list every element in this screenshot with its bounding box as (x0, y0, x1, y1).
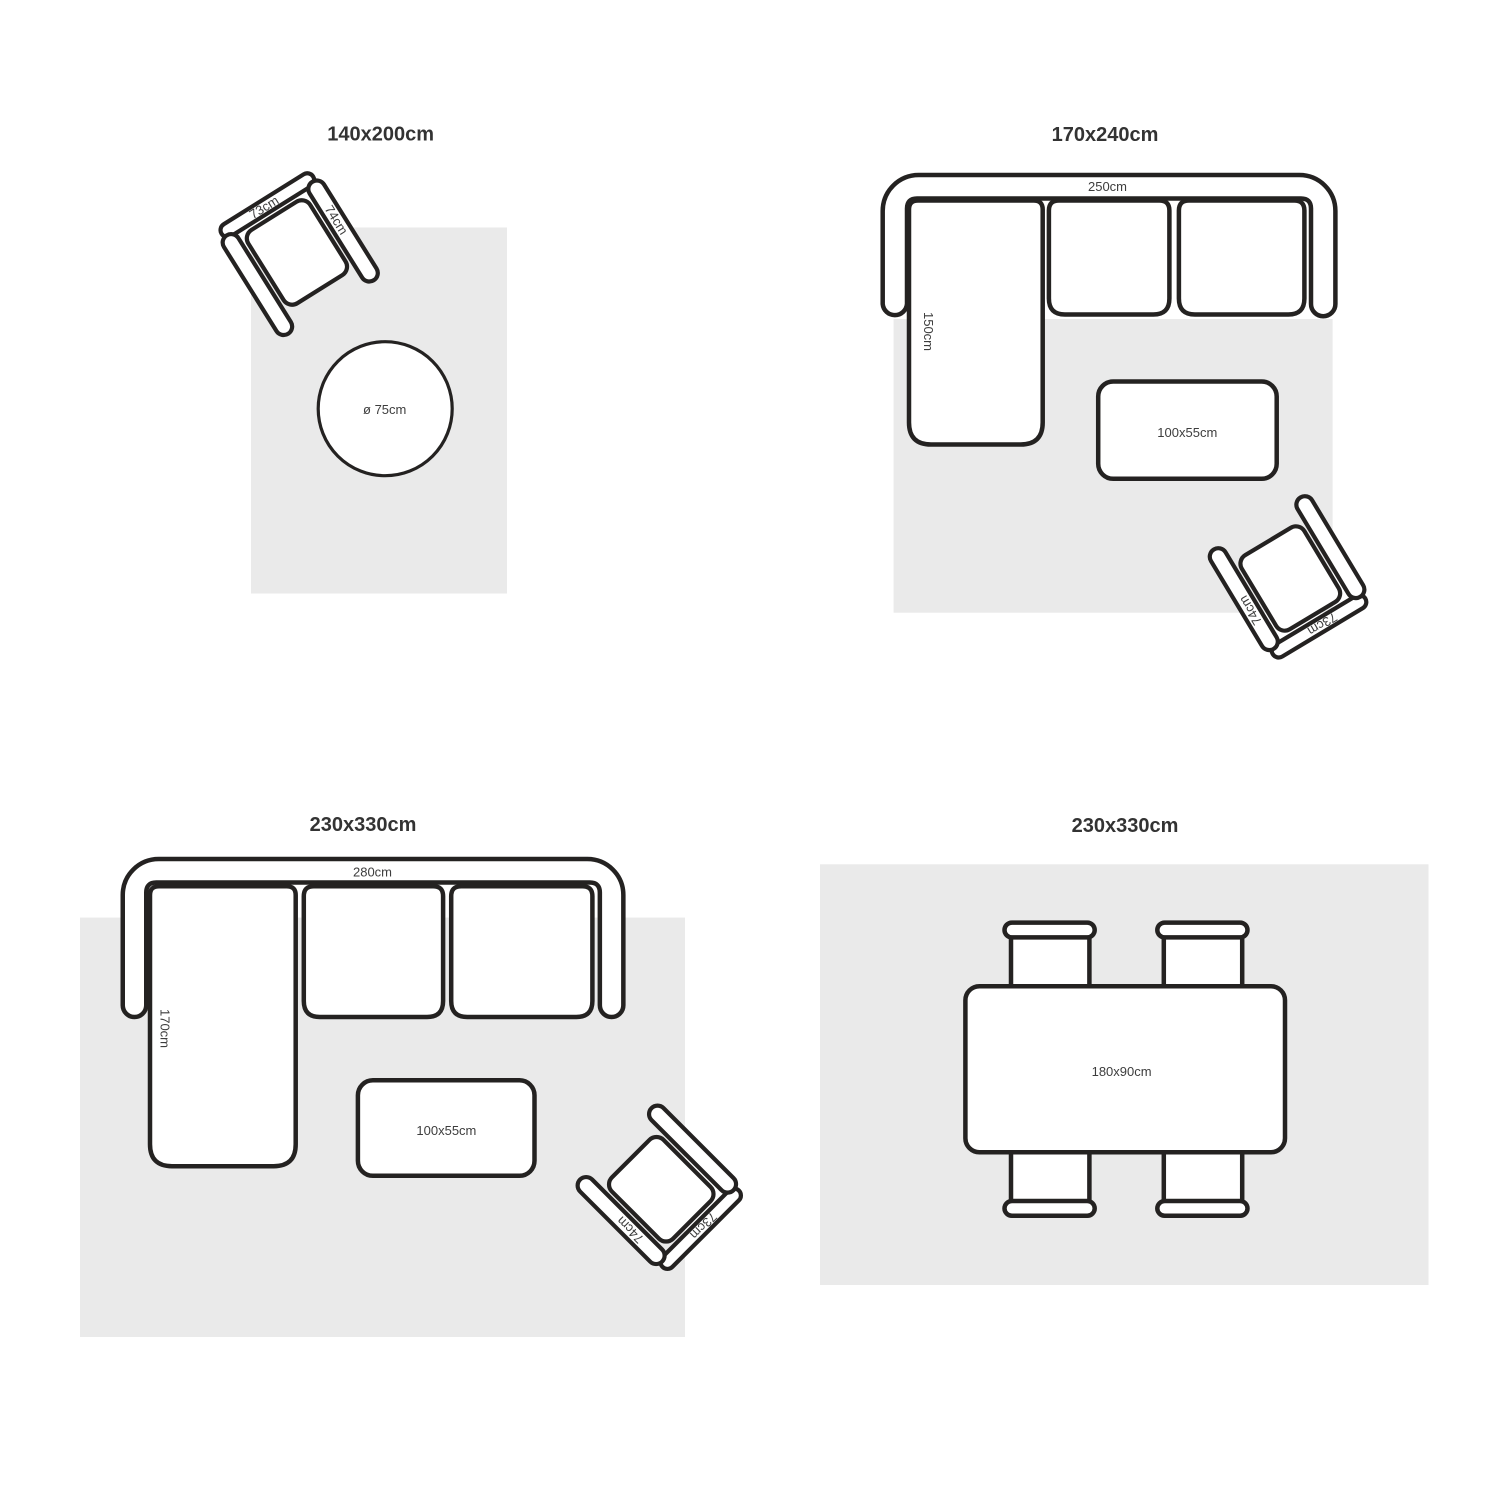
svg-text:230x330cm: 230x330cm (310, 814, 417, 836)
svg-text:230x330cm: 230x330cm (1072, 815, 1179, 837)
svg-text:170x240cm: 170x240cm (1052, 124, 1159, 146)
svg-text:250cm: 250cm (1088, 179, 1127, 194)
svg-text:150cm: 150cm (921, 312, 936, 351)
svg-text:140x200cm: 140x200cm (327, 124, 434, 146)
svg-text:100x55cm: 100x55cm (1157, 425, 1217, 440)
svg-text:100x55cm: 100x55cm (416, 1123, 476, 1138)
svg-text:ø 75cm: ø 75cm (363, 402, 406, 417)
svg-text:170cm: 170cm (158, 1009, 173, 1048)
svg-text:180x90cm: 180x90cm (1092, 1064, 1152, 1079)
svg-text:280cm: 280cm (353, 864, 392, 879)
